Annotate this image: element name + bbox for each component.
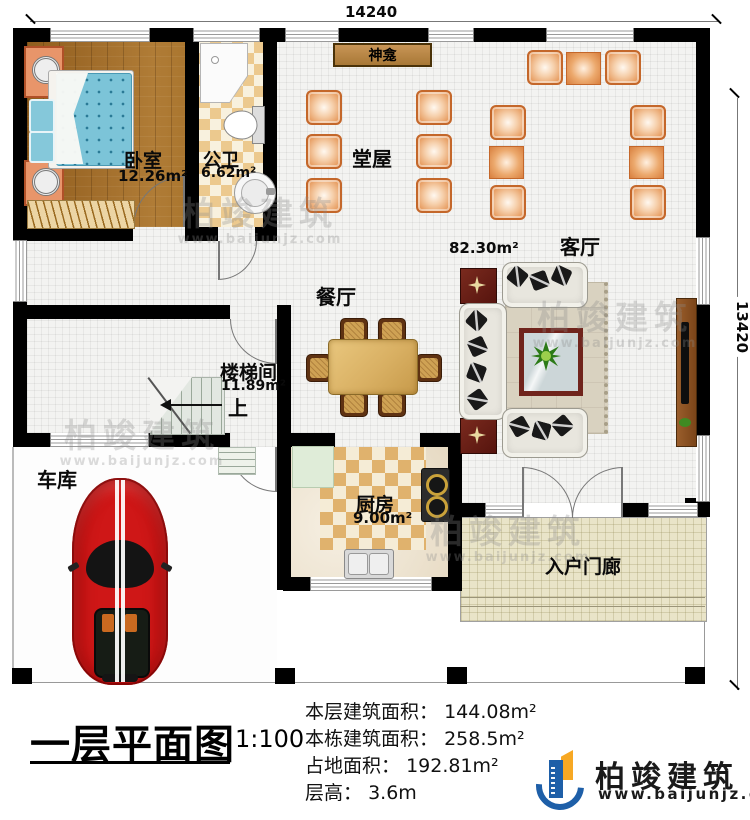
stat-label: 层高： xyxy=(305,782,362,804)
plan-scale: 1:100 xyxy=(235,725,304,753)
window xyxy=(428,28,474,42)
armchair-icon xyxy=(527,50,563,85)
logo-tower-windows-icon xyxy=(551,764,555,794)
plan-title-underline xyxy=(30,761,230,764)
sink-faucet-icon xyxy=(266,188,275,195)
nightstand-lamp-icon xyxy=(32,168,60,196)
armchair-icon xyxy=(306,134,342,169)
right-dimension-line xyxy=(737,98,738,690)
bathroom-area: 6.62m² xyxy=(201,165,256,181)
stairs-direction-line xyxy=(168,404,222,406)
wall-bathroom-bottom xyxy=(199,227,218,241)
armchair-icon xyxy=(490,185,526,220)
stairs-up-label: 上 xyxy=(228,392,248,421)
armchair-icon xyxy=(306,178,342,213)
stat-label: 占地面积： xyxy=(305,755,400,777)
company-website: www.baijunjz.com xyxy=(598,785,750,803)
armchair-icon xyxy=(605,50,641,85)
stat-value: 3.6m xyxy=(368,782,417,804)
stat-building-area: 本栋建筑面积： 258.5m² xyxy=(305,726,537,753)
armchair-icon xyxy=(490,105,526,140)
garage-label: 车库 xyxy=(37,464,77,493)
window xyxy=(310,577,432,591)
window xyxy=(696,237,710,305)
bed-pillow xyxy=(29,99,55,133)
sink-basin-icon xyxy=(241,179,269,207)
wall-living-bottom xyxy=(448,503,485,517)
kitchen-sink-basin-icon xyxy=(348,553,368,575)
wall-stairwell-top xyxy=(13,305,230,319)
hall-label: 堂屋 xyxy=(352,143,392,172)
window xyxy=(696,435,710,502)
window xyxy=(50,433,149,447)
burner-icon xyxy=(426,496,448,518)
window xyxy=(13,240,27,302)
dimension-tick xyxy=(711,14,722,25)
living-label: 客厅 xyxy=(560,231,600,260)
garage-door-leaf xyxy=(275,447,277,491)
bathroom-door-leaf xyxy=(218,241,220,279)
bedroom-area: 12.26m² xyxy=(118,167,188,185)
stat-value: 258.5m² xyxy=(444,728,525,750)
wardrobe xyxy=(27,200,135,229)
tv-plant-icon xyxy=(679,418,691,427)
window xyxy=(50,28,150,42)
dining-label: 餐厅 xyxy=(316,281,356,310)
car-stripe xyxy=(121,480,125,682)
bed-pillow xyxy=(29,131,55,163)
stat-label: 本层建筑面积： xyxy=(305,701,438,723)
porch-step-line xyxy=(460,597,705,598)
tea-table-icon xyxy=(629,146,664,179)
company-logo-icon xyxy=(535,750,589,804)
entry-door-leaf xyxy=(522,467,524,517)
company-logo: 柏竣建筑 www.baijunjz.com xyxy=(535,748,745,808)
stats-block: 本层建筑面积： 144.08m² 本栋建筑面积： 258.5m² 占地面积： 1… xyxy=(305,699,537,807)
tv-icon xyxy=(681,322,689,404)
plant-center-icon xyxy=(541,351,551,361)
wall-stairwell-right xyxy=(277,305,291,590)
stat-floor-height: 层高： 3.6m xyxy=(305,780,537,807)
wall-bedroom-right xyxy=(185,42,199,241)
column xyxy=(447,667,467,684)
stairs-lower-steps xyxy=(218,447,256,475)
tea-table-icon xyxy=(566,52,601,85)
window xyxy=(648,503,698,517)
wall-stairwell-bottom xyxy=(13,433,50,447)
burner-icon xyxy=(426,474,448,496)
wall-kitchen-top xyxy=(420,433,462,447)
column xyxy=(12,668,32,684)
window xyxy=(193,28,260,42)
armchair-icon xyxy=(416,134,452,169)
stairwell-door-leaf xyxy=(275,319,277,363)
wall-kitchen-top xyxy=(291,433,335,447)
shrine-cabinet: 神龛 xyxy=(333,43,432,67)
window xyxy=(546,28,634,42)
armchair-icon xyxy=(416,90,452,125)
right-dimension-label: 13420 xyxy=(733,297,750,357)
floor-plan-page: { "dimensions": { "top": "14240", "right… xyxy=(0,0,750,817)
dining-table xyxy=(328,339,418,395)
coffee-table xyxy=(519,328,583,396)
porch-label: 入户门廊 xyxy=(545,552,621,579)
dining-chair-icon xyxy=(416,354,442,382)
stat-value: 192.81m² xyxy=(406,755,499,777)
car-stripe xyxy=(115,480,119,682)
shower-drain-icon xyxy=(211,56,219,64)
car-engine-detail xyxy=(125,614,137,632)
column xyxy=(275,668,295,684)
dimension-tick xyxy=(729,680,740,691)
wall-living-bottom xyxy=(622,503,648,517)
armchair-icon xyxy=(630,185,666,220)
living-area: 82.30m² xyxy=(449,239,519,257)
car-icon xyxy=(72,478,168,685)
top-dimension-label: 14240 xyxy=(340,3,402,21)
shrine-label: 神龛 xyxy=(369,45,397,65)
armchair-icon xyxy=(630,105,666,140)
kitchen-sink-basin-icon xyxy=(369,553,389,575)
stat-floor-area: 本层建筑面积： 144.08m² xyxy=(305,699,537,726)
porch-step-line xyxy=(460,606,705,607)
armchair-icon xyxy=(306,90,342,125)
toilet-bowl-icon xyxy=(224,111,258,140)
window xyxy=(485,503,524,517)
stat-value: 144.08m² xyxy=(444,701,537,723)
top-dimension-line xyxy=(30,21,718,22)
dimension-tick xyxy=(729,88,740,99)
kitchen-counter xyxy=(292,446,334,488)
car-windshield xyxy=(86,540,154,588)
wall-kitchen-bottom xyxy=(430,577,462,591)
kitchen-area: 9.00m² xyxy=(353,509,412,527)
dimension-tick xyxy=(25,14,36,25)
wall-stairwell-bottom xyxy=(147,433,230,447)
wall-kitchen-bottom xyxy=(283,577,310,591)
wall-bedroom-bottom xyxy=(13,227,133,241)
garage-left-line xyxy=(12,447,14,683)
column xyxy=(685,667,705,684)
entry-door-leaf xyxy=(621,467,623,517)
armchair-icon xyxy=(416,178,452,213)
window xyxy=(285,28,339,42)
stat-land-area: 占地面积： 192.81m² xyxy=(305,753,537,780)
car-engine-detail xyxy=(102,614,114,632)
car-rear-window xyxy=(102,674,138,682)
tea-table-icon xyxy=(489,146,524,179)
stairs-arrowhead-icon xyxy=(160,399,171,411)
stat-label: 本栋建筑面积： xyxy=(305,728,438,750)
